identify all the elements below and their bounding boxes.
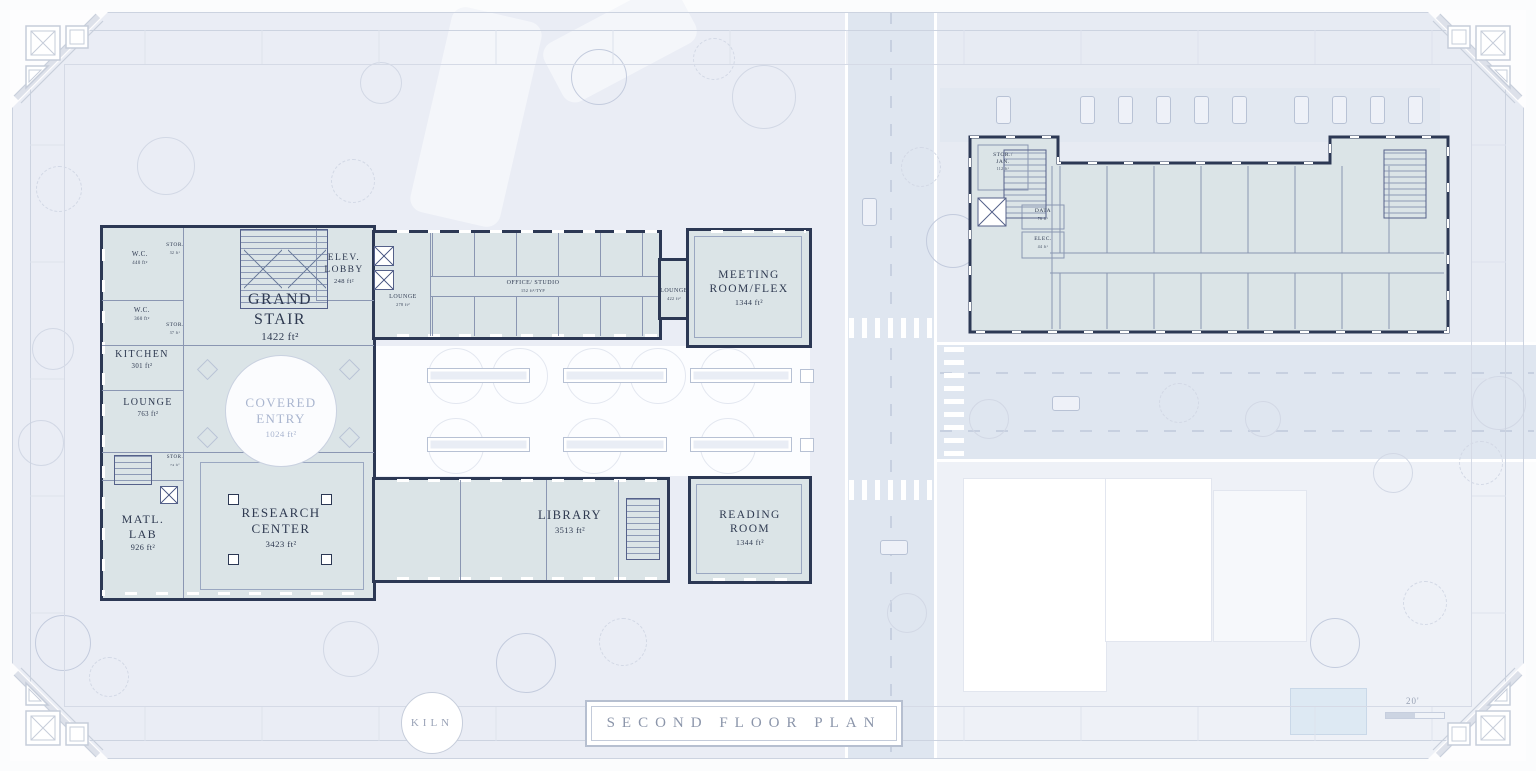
room-label-library: LIBRARY 3513 ft²: [510, 508, 630, 536]
partition: [516, 233, 517, 276]
partition: [432, 233, 433, 276]
room-name: LIBRARY: [510, 508, 630, 523]
windows: [378, 577, 666, 580]
partition: [558, 296, 559, 336]
column: [321, 494, 332, 505]
scale-label: 20': [1406, 696, 1420, 706]
badge-label: KILN: [411, 717, 453, 729]
partition: [600, 296, 601, 336]
room-name: MATL. LAB: [114, 512, 172, 541]
room-name: COVERED ENTRY: [226, 395, 336, 427]
courtyard-bench: [800, 369, 814, 383]
windows: [106, 592, 370, 595]
room-area: 152 ft²/TYP: [483, 289, 583, 294]
service-stair: [114, 455, 152, 485]
planter: [690, 368, 792, 383]
room-label-covered-entry: COVERED ENTRY 1024 ft²: [226, 395, 336, 440]
room-name: STOR.: [157, 322, 193, 329]
firm-badge: KILN: [401, 692, 463, 754]
room-label-lounge-mid: LOUNGE 278 ft²: [376, 294, 430, 308]
room-name: READING ROOM: [710, 508, 790, 536]
windows: [694, 578, 806, 581]
windows: [378, 479, 666, 482]
room-area: 926 ft²: [114, 543, 172, 553]
room-name: LOUNGE: [376, 294, 430, 301]
room-name: W.C.: [114, 306, 170, 315]
partition: [516, 296, 517, 336]
room-area: 32 ft²: [157, 251, 193, 256]
planter: [690, 437, 792, 452]
room-area: 278 ft²: [376, 303, 430, 308]
windows: [378, 230, 658, 233]
courtyard-bench: [800, 438, 814, 452]
partition: [474, 233, 475, 276]
room-label-stor-south: STOR. 74 ft²: [158, 455, 192, 467]
partition: [102, 452, 374, 453]
room-label-reading-room: READING ROOM 1344 ft²: [710, 508, 790, 548]
room-area: 1344 ft²: [710, 538, 790, 548]
partition: [642, 233, 643, 276]
shaft: [160, 486, 178, 504]
room-name: DATA: [1024, 208, 1062, 215]
room-area: 763 ft²: [102, 411, 194, 419]
room-label-research-center: RESEARCH CENTER 3423 ft²: [211, 505, 351, 550]
room-name: KITCHEN: [102, 349, 182, 361]
partition: [102, 300, 183, 301]
room-name: GRAND STAIR: [220, 290, 340, 329]
room-name: LOUNGE: [102, 397, 194, 409]
room-label-elev-lobby: ELEV. LOBBY 248 ft²: [311, 253, 377, 286]
room-label-stor-jan: STOR./ JAN. 112 ft²: [986, 152, 1020, 172]
room-name: ELEV. LOBBY: [311, 253, 377, 276]
planter: [563, 437, 667, 452]
room-label-grand-stair: GRAND STAIR 1422 ft²: [220, 290, 340, 344]
partition: [430, 233, 431, 336]
room-name: LOUNGE: [648, 288, 700, 295]
room-area: 1344 ft²: [694, 298, 804, 308]
room-area: 112 ft²: [986, 167, 1020, 172]
column: [228, 494, 239, 505]
room-label-kitchen: KITCHEN 301 ft²: [102, 349, 182, 371]
room-label-matl-lab: MATL. LAB 926 ft²: [114, 512, 172, 553]
room-area: 3513 ft²: [510, 525, 630, 535]
room-area: 37 ft²: [157, 331, 193, 336]
room-name: ELEC.: [1024, 236, 1062, 243]
room-area: 440 ft²: [112, 261, 168, 267]
room-label-stor-mid: STOR. 37 ft²: [157, 322, 193, 335]
room-label-office-studio: OFFICE/ STUDIO 152 ft²/TYP: [483, 280, 583, 294]
column: [228, 554, 239, 565]
room-area: 3423 ft²: [211, 539, 351, 550]
partition: [558, 233, 559, 276]
partition: [474, 296, 475, 336]
room-area: 44 ft²: [1024, 245, 1062, 250]
sheet-title: SECOND FLOOR PLAN: [607, 715, 882, 732]
partition: [102, 390, 183, 391]
stair-east: [1384, 150, 1426, 218]
room-name: OFFICE/ STUDIO: [483, 280, 583, 287]
room-label-lounge-east: LOUNGE 422 ft²: [648, 288, 700, 302]
partition: [600, 233, 601, 276]
room-name: STOR.: [157, 242, 193, 249]
room-area: 422 ft²: [648, 297, 700, 302]
library-stair: [626, 498, 660, 560]
partition: [430, 296, 658, 297]
title-block: SECOND FLOOR PLAN: [585, 700, 903, 747]
room-name: STOR.: [158, 455, 192, 461]
room-area: 1422 ft²: [220, 331, 340, 344]
planter: [563, 368, 667, 383]
elevator-shaft: [978, 198, 1006, 226]
room-area: 74 ft²: [158, 463, 192, 467]
windows: [378, 334, 658, 337]
floor-plan-sheet: W.C. 440 ft² STOR. 32 ft² W.C. 360 ft² S…: [0, 0, 1536, 771]
room-name: STOR./ JAN.: [986, 152, 1020, 165]
partition: [102, 345, 374, 346]
room-area: 1024 ft²: [226, 429, 336, 440]
room-area: 301 ft²: [102, 363, 182, 371]
partition: [460, 480, 461, 580]
room-name: RESEARCH CENTER: [211, 505, 351, 537]
partition: [430, 276, 658, 277]
room-label-elec: ELEC. 44 ft²: [1024, 236, 1062, 249]
planter: [427, 437, 530, 452]
partition: [432, 296, 433, 336]
room-area: 248 ft²: [311, 278, 377, 286]
partition: [642, 296, 643, 336]
windows: [692, 230, 806, 233]
scale-bar: [1385, 712, 1445, 719]
column: [321, 554, 332, 565]
room-label-stor-north: STOR. 32 ft²: [157, 242, 193, 255]
room-label-data: DATA 76 ft²: [1024, 208, 1062, 221]
room-label-lounge-west: LOUNGE 763 ft²: [102, 397, 194, 419]
room-label-wc-south: W.C. 360 ft²: [114, 306, 170, 322]
room-name: MEETING ROOM/FLEX: [694, 268, 804, 296]
elevator-shaft: [374, 270, 394, 290]
room-label-meeting-room: MEETING ROOM/FLEX 1344 ft²: [694, 268, 804, 308]
planter: [427, 368, 530, 383]
elevator-shaft: [374, 246, 394, 266]
room-area: 76 ft²: [1024, 217, 1062, 222]
